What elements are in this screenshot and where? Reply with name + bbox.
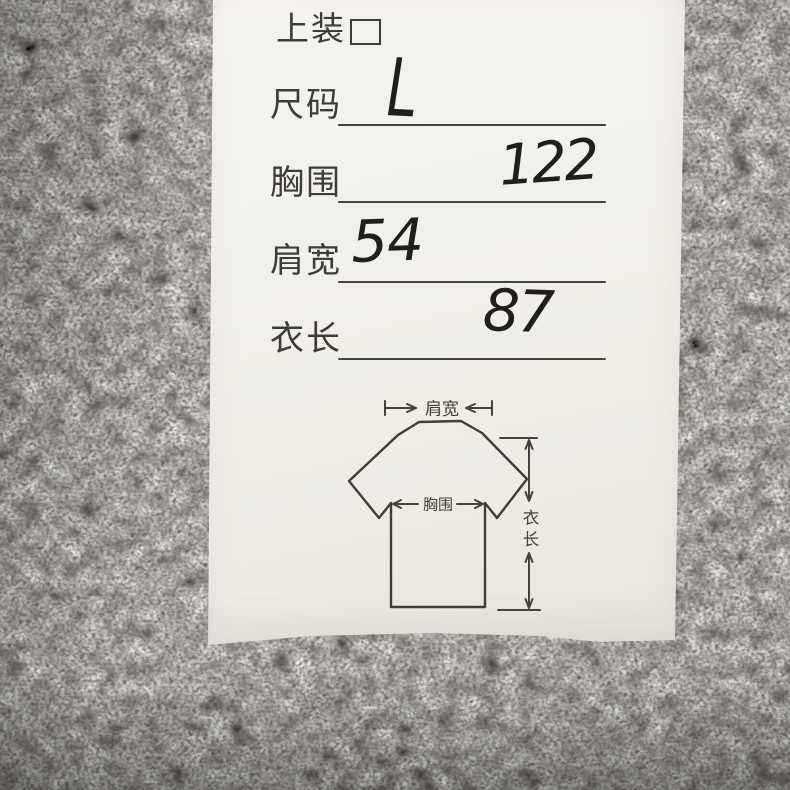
shoulder-width-dimension-label: 肩宽 <box>425 400 459 419</box>
tshirt-outline <box>349 421 527 607</box>
garment-length-dimension-label: 衣长 <box>520 509 539 552</box>
chest-dimension: 胸围 <box>393 497 483 514</box>
bust-underline <box>338 201 606 203</box>
shoulder-handwritten-value: 54 <box>350 210 424 270</box>
length-handwritten-value: 87 <box>482 281 554 341</box>
tshirt-measurement-diagram: 肩宽 胸围 衣长 <box>330 385 560 625</box>
shoulder-label: 肩宽 <box>270 244 342 278</box>
measurement-card: 上装 尺码 L 胸围 122 肩宽 54 衣长 87 肩宽 <box>204 0 690 650</box>
size-underline <box>338 124 606 126</box>
length-label: 衣长 <box>270 322 342 356</box>
shoulder-width-dimension: 肩宽 <box>385 400 492 419</box>
chest-dimension-label: 胸围 <box>423 497 453 514</box>
card-title: 上装 <box>276 12 346 45</box>
size-handwritten-value: L <box>386 48 418 130</box>
size-label: 尺码 <box>270 88 342 122</box>
length-underline <box>338 358 606 360</box>
bust-label: 胸围 <box>270 166 342 200</box>
checkbox-icon <box>350 19 381 45</box>
photo-of-size-card-on-carpet: 上装 尺码 L 胸围 122 肩宽 54 衣长 87 肩宽 <box>0 0 790 790</box>
shoulder-underline <box>338 281 606 283</box>
garment-length-dimension: 衣长 <box>498 438 540 610</box>
bust-handwritten-value: 122 <box>497 132 599 195</box>
